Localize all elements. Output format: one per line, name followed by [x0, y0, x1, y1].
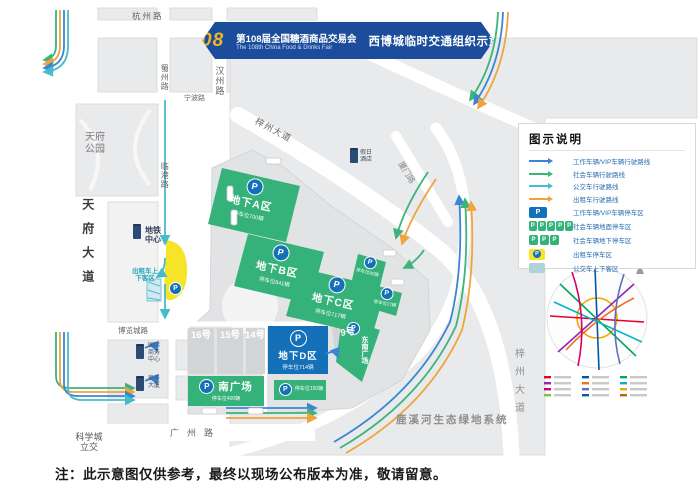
metro-network-inset — [538, 258, 656, 408]
poi-label-metro-center: 地铁中心 — [145, 226, 163, 244]
road-label-hangzhou: 杭州路 — [132, 12, 164, 22]
taxi-parking-icon: P — [169, 282, 182, 295]
parking-southeast-plaza-label: 东南广场 — [360, 336, 368, 364]
road-label-shuzhou: 蜀州路 — [160, 64, 169, 91]
label-kexuecheng-interchange: 科学城立交 — [74, 432, 104, 453]
road-label-lingang: 临港路 — [160, 162, 169, 189]
underground-parking-chip-icon: P — [550, 235, 559, 245]
label-luxihe-greenbelt: 鹿溪河生态绿地系统 — [396, 414, 509, 426]
poi-label-holiday-hotel: 假日酒店 — [360, 150, 374, 164]
hall-15-label: 15号 — [217, 331, 243, 342]
parking-south1-label: P 停车位150辆 — [276, 383, 326, 396]
parking-icon: P — [199, 379, 214, 394]
parking-icon: P — [327, 275, 347, 295]
road-label-guangzhou: 广州路 — [170, 428, 221, 438]
social-route-arrow-icon — [529, 173, 549, 175]
legend-item-taxi-route: 出租车行驶路线 — [529, 193, 685, 206]
legend-panel: 图示说明 工作车辆/VIP车辆行驶路线 社会车辆行驶路线 公交车行驶路线 出租车… — [518, 123, 696, 269]
parking-icon: P — [271, 243, 291, 263]
road-label-tianfu-avenue: 天府大道 — [80, 198, 94, 294]
legend-item-taxi-parking: P 出租车停车区 — [529, 247, 685, 261]
vip-parking-chip-icon: P — [529, 207, 547, 218]
legend-item-vip-parking: P 工作车辆/VIP车辆停车区 — [529, 205, 685, 219]
taxi-route-arrow-icon — [529, 198, 549, 200]
parking-icon: P — [290, 330, 307, 347]
parking-icon: P — [245, 177, 265, 197]
metro-line-list — [544, 376, 647, 396]
social-parking-chip-icon: P — [538, 221, 546, 231]
parking-icon: P — [279, 383, 292, 396]
road-label-ningbo: 宁波路 — [184, 95, 205, 103]
bus-stop-swatch-icon — [529, 263, 545, 273]
hall-14-label: 14号 — [243, 331, 267, 342]
poi-label-taxi-pickup: 出租车上下客区 — [131, 268, 159, 283]
poi-label-biz-tower: 商务大厦 — [148, 376, 161, 390]
legend-title: 图示说明 — [529, 131, 685, 151]
disclaimer-note: 注：此示意图仅供参考，最终以现场公布版本为准，敬请留意。 — [55, 463, 447, 483]
hall-16-label: 16号 — [188, 331, 214, 342]
legend-item-social-underground-parking: P P P 社会车辆地下停车区 — [529, 233, 685, 247]
road-label-zizhou-avenue-south: 梓州大道 — [512, 348, 524, 420]
fair-title-cn: 第108届全国糖酒商品交易会 — [236, 31, 356, 45]
road-label-hanzhou: 汉州路 — [214, 66, 224, 96]
biz-tower-building-icon — [136, 376, 144, 391]
legend-item-bus-stop: 公交车上下客区 — [529, 261, 685, 275]
vip-route-arrow-icon — [529, 160, 549, 162]
road-label-bolancheng: 博览城路 — [118, 327, 148, 336]
parking-icon: P — [379, 286, 394, 301]
social-parking-chip-icon: P — [529, 221, 537, 231]
area-label-tianfu-park: 天府公园 — [84, 132, 106, 155]
fair-title-en: The 108th China Food & Drinks Fair — [236, 45, 356, 51]
underground-parking-chip-icon: P — [540, 235, 549, 245]
hotel-building-icon — [350, 148, 358, 163]
metro-center-building-icon — [133, 224, 141, 239]
legend-item-bus-route: 公交车行驶路线 — [529, 180, 685, 193]
bus-route-arrow-icon — [529, 185, 549, 187]
parking-south-plaza-label: P 南广场 停车位400辆 — [190, 379, 262, 402]
social-parking-chip-icon: P — [556, 221, 564, 231]
taxi-parking-chip-icon: P — [529, 249, 545, 260]
social-parking-chip-icon: P — [547, 221, 555, 231]
legend-item-social-surface-parking: P P P P P 社会车辆地面停车区 — [529, 219, 685, 233]
parking-zone-d-label: P 地下D区 停车位714辆 — [268, 330, 328, 371]
traffic-map-page: 108 第108届全国糖酒商品交易会 The 108th China Food … — [0, 0, 700, 495]
poi-label-biz-center: 国际商务中心 — [148, 343, 161, 364]
social-parking-chip-icon: P — [565, 221, 573, 231]
legend-item-social-route: 社会车辆行驶路线 — [529, 168, 685, 181]
title-banner: 108 第108届全国糖酒商品交易会 The 108th China Food … — [202, 22, 494, 59]
biz-center-building-icon — [136, 344, 144, 359]
underground-parking-chip-icon: P — [529, 235, 538, 245]
legend-item-vip-route: 工作车辆/VIP车辆行驶路线 — [529, 155, 685, 168]
